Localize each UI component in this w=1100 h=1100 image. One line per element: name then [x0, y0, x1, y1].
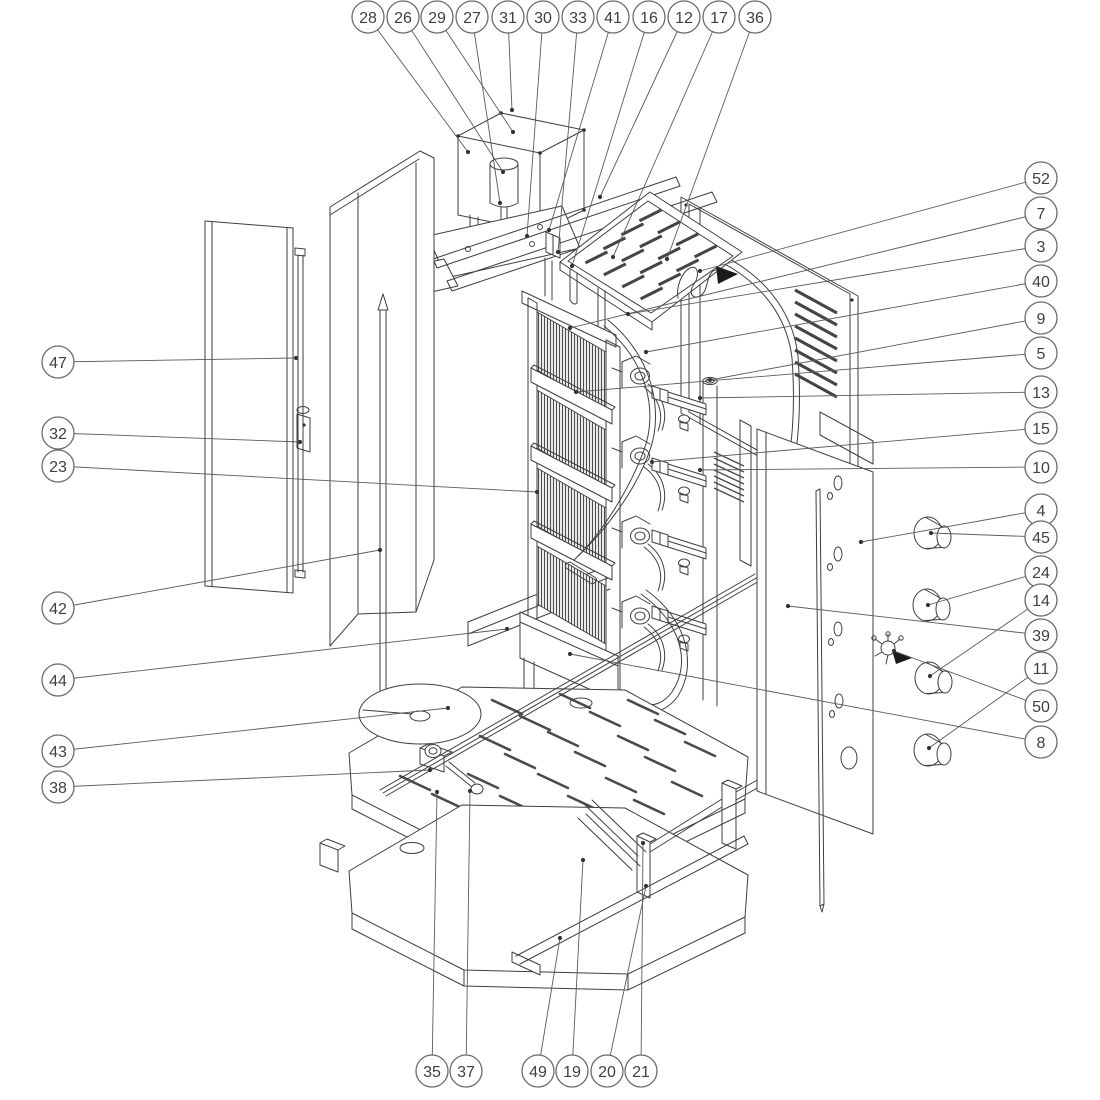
callout-number: 4: [1037, 503, 1046, 520]
leader-dot-43: [446, 706, 450, 710]
callout-number: 23: [49, 459, 67, 476]
callout-17: 17: [703, 1, 735, 33]
callout-number: 14: [1032, 593, 1050, 610]
leader-line-30: [527, 17, 543, 236]
leader-dot-32: [298, 440, 302, 444]
callout-47: 47: [42, 346, 74, 378]
burner-frame: [516, 258, 630, 754]
callout-43: 43: [42, 735, 74, 767]
callout-44: 44: [42, 664, 74, 696]
leader-dot-38: [428, 768, 432, 772]
callout-number: 24: [1032, 565, 1050, 582]
callout-number: 50: [1032, 699, 1050, 716]
leader-dot-37: [468, 789, 472, 793]
leader-dot-50: [892, 649, 896, 653]
leader-dot-20: [644, 884, 648, 888]
callout-21: 21: [625, 1055, 657, 1087]
callout-number: 43: [49, 744, 67, 761]
leader-dot-45: [929, 531, 933, 535]
callout-39: 39: [1025, 619, 1057, 651]
callout-number: 49: [529, 1064, 547, 1081]
callout-number: 27: [463, 10, 481, 27]
leader-dot-14: [928, 674, 932, 678]
callout-number: 32: [49, 426, 67, 443]
leader-dot-3: [626, 312, 630, 316]
leader-dot-4: [859, 540, 863, 544]
piezo-igniter: [872, 632, 912, 664]
knob-4: [914, 734, 951, 766]
leader-dot-42: [378, 548, 382, 552]
leader-dot-16: [570, 264, 574, 268]
leader-dot-11: [927, 746, 931, 750]
callout-number: 10: [1032, 460, 1050, 477]
callout-number: 21: [632, 1064, 650, 1081]
callout-number: 33: [569, 10, 587, 27]
callout-number: 9: [1037, 311, 1046, 328]
leader-dot-30: [525, 234, 529, 238]
callout-14: 14: [1025, 584, 1057, 616]
callout-number: 16: [640, 10, 658, 27]
knob-3: [915, 662, 952, 694]
leader-line-41: [549, 17, 613, 230]
callout-38: 38: [42, 771, 74, 803]
callout-number: 35: [423, 1064, 441, 1081]
callout-number: 8: [1037, 735, 1046, 752]
leader-line-12: [600, 17, 684, 197]
leader-dot-15: [650, 460, 654, 464]
leader-line-44: [58, 629, 507, 680]
callout-37: 37: [450, 1055, 482, 1087]
callout-number: 19: [563, 1064, 581, 1081]
callout-16: 16: [633, 1, 665, 33]
callout-number: 47: [49, 355, 67, 372]
leader-dot-19: [581, 858, 585, 862]
callout-number: 39: [1032, 628, 1050, 645]
leader-dot-8: [568, 652, 572, 656]
exploded-view-diagram: 2826292731303341161217365273409513151044…: [0, 0, 1100, 1100]
leader-dot-17: [611, 255, 615, 259]
callout-45: 45: [1025, 521, 1057, 553]
callout-number: 12: [675, 10, 693, 27]
callout-40: 40: [1025, 265, 1057, 297]
callout-29: 29: [421, 1, 453, 33]
callout-3: 3: [1025, 230, 1057, 262]
callout-11: 11: [1025, 652, 1057, 684]
leader-line-28: [368, 17, 468, 152]
callout-9: 9: [1025, 302, 1057, 334]
callout-26: 26: [387, 1, 419, 33]
gas-valve-2: [652, 458, 706, 503]
control-knobs: [913, 517, 952, 766]
callout-number: 3: [1037, 239, 1046, 256]
leader-line-24: [928, 572, 1041, 605]
leader-dot-47: [294, 356, 298, 360]
leader-dot-39: [786, 604, 790, 608]
leader-dot-13: [698, 396, 702, 400]
leader-dot-41: [547, 228, 551, 232]
leader-line-52: [700, 178, 1041, 271]
leader-line-27: [472, 17, 500, 203]
callout-20: 20: [591, 1055, 623, 1087]
callout-35: 35: [416, 1055, 448, 1087]
callout-28: 28: [352, 1, 384, 33]
leader-dot-5: [574, 390, 578, 394]
callout-number: 52: [1032, 171, 1050, 188]
callout-number: 36: [746, 10, 764, 27]
leader-dot-35: [435, 790, 439, 794]
callout-number: 31: [499, 10, 517, 27]
gas-valve-3: [652, 530, 706, 575]
callout-33: 33: [562, 1, 594, 33]
callout-41: 41: [597, 1, 629, 33]
control-panel: [757, 429, 873, 834]
leader-dot-44: [505, 627, 509, 631]
callout-number: 13: [1032, 385, 1050, 402]
callout-12: 12: [668, 1, 700, 33]
callout-24: 24: [1025, 556, 1057, 588]
side-panel: [330, 151, 434, 646]
callout-7: 7: [1025, 197, 1057, 229]
callout-number: 20: [598, 1064, 616, 1081]
callout-number: 5: [1037, 346, 1046, 363]
callout-number: 29: [428, 10, 446, 27]
callout-number: 42: [49, 601, 67, 618]
callout-13: 13: [1025, 376, 1057, 408]
leader-dot-52: [698, 269, 702, 273]
leader-dot-31: [510, 108, 514, 112]
callout-number: 28: [359, 10, 377, 27]
meat-tray-disc: [359, 684, 481, 744]
leader-dot-7: [568, 326, 572, 330]
door-panel: [205, 221, 310, 593]
callout-number: 38: [49, 780, 67, 797]
leader-dot-21: [641, 841, 645, 845]
leader-dot-36: [665, 257, 669, 261]
leader-dot-27: [498, 201, 502, 205]
callout-32: 32: [42, 417, 74, 449]
callout-number: 37: [457, 1064, 475, 1081]
leader-dot-33: [556, 250, 560, 254]
leader-dot-24: [926, 603, 930, 607]
callout-23: 23: [42, 450, 74, 482]
callout-number: 44: [49, 673, 67, 690]
callout-42: 42: [42, 592, 74, 624]
leader-dot-28: [466, 150, 470, 154]
callout-49: 49: [522, 1055, 554, 1087]
callout-number: 11: [1033, 661, 1050, 678]
leader-dot-40: [644, 350, 648, 354]
callout-8: 8: [1025, 726, 1057, 758]
callout-10: 10: [1025, 451, 1057, 483]
callout-number: 45: [1032, 530, 1050, 547]
callout-27: 27: [456, 1, 488, 33]
callout-number: 17: [710, 10, 728, 27]
diagram-page: 2826292731303341161217365273409513151044…: [0, 0, 1100, 1100]
leader-dot-12: [598, 195, 602, 199]
callout-number: 41: [604, 10, 622, 27]
leader-dot-9: [708, 378, 712, 382]
leader-dot-23: [535, 490, 539, 494]
callout-5: 5: [1025, 337, 1057, 369]
callout-number: 40: [1032, 274, 1050, 291]
knob-2: [913, 589, 950, 621]
leader-dot-49: [558, 936, 562, 940]
callout-15: 15: [1025, 412, 1057, 444]
callout-36: 36: [739, 1, 771, 33]
callout-number: 26: [394, 10, 412, 27]
callout-30: 30: [527, 1, 559, 33]
leader-dot-10: [698, 468, 702, 472]
callout-52: 52: [1025, 162, 1057, 194]
leader-dot-26: [501, 170, 505, 174]
callout-50: 50: [1025, 690, 1057, 722]
callout-number: 30: [534, 10, 552, 27]
callout-19: 19: [556, 1055, 588, 1087]
callout-number: 7: [1037, 206, 1046, 223]
callout-31: 31: [492, 1, 524, 33]
leader-dot-29: [511, 130, 515, 134]
callout-number: 15: [1032, 421, 1050, 438]
